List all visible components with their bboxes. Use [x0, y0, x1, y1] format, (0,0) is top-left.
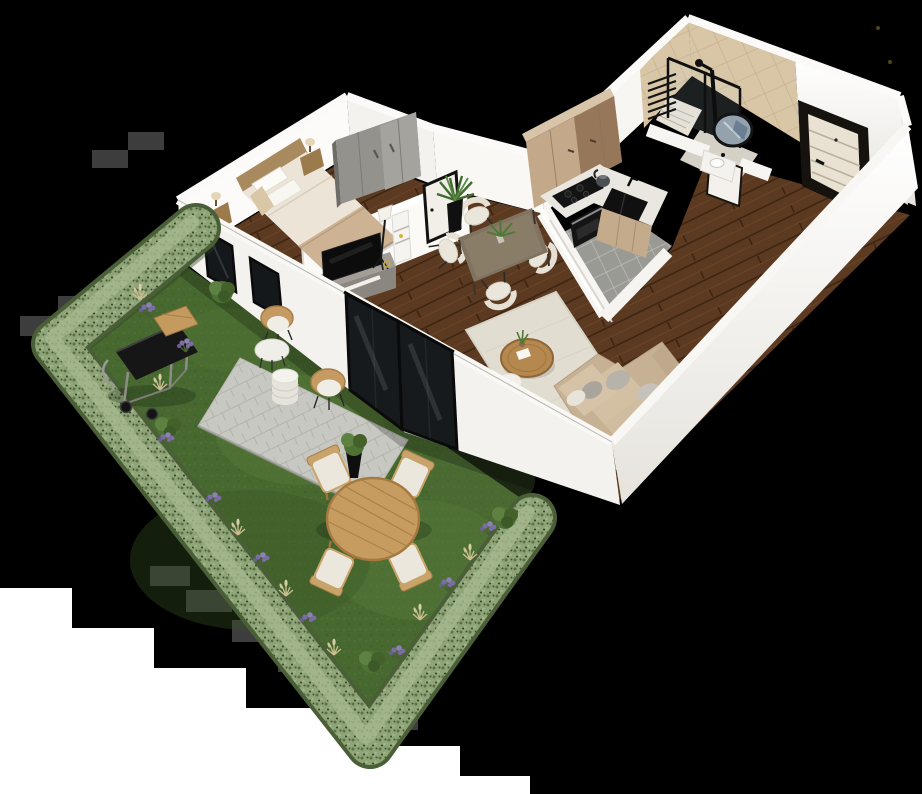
floorplan-render — [0, 0, 922, 794]
floorplan-svg — [0, 0, 922, 794]
round-mirror — [714, 114, 752, 146]
shelf-tower — [392, 210, 411, 264]
drum-side-table — [272, 369, 298, 405]
